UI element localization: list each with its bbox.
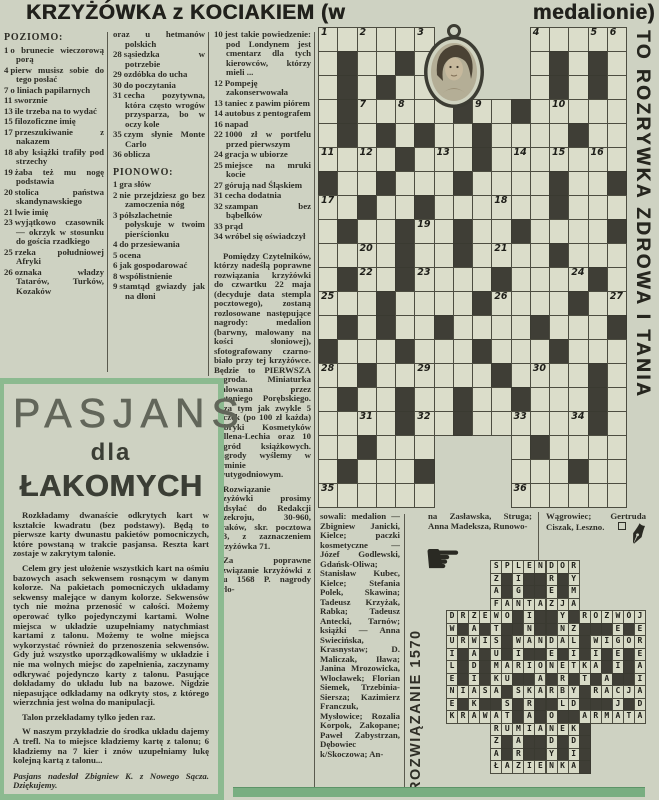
black-cell — [472, 123, 492, 148]
cell-number: 6 — [608, 27, 617, 38]
white-cell — [318, 123, 338, 148]
cell-number: 5 — [589, 27, 598, 38]
white-cell — [337, 363, 357, 388]
white-cell — [607, 75, 627, 100]
cell-number: 18 — [492, 195, 507, 206]
white-cell — [588, 315, 608, 340]
white-cell — [318, 75, 338, 100]
white-cell — [491, 339, 511, 364]
white-cell — [453, 339, 473, 364]
white-cell — [568, 27, 588, 52]
white-cell — [607, 363, 627, 388]
black-cell — [453, 171, 473, 196]
black-cell — [607, 219, 627, 244]
black-cell — [511, 219, 531, 244]
black-cell — [472, 147, 492, 172]
column-rule — [107, 32, 108, 372]
cell-number: 26 — [492, 291, 507, 302]
paragraph: Rozkładamy dwanaście odkrytych kart w ks… — [13, 511, 209, 559]
white-cell — [568, 315, 588, 340]
white-cell — [395, 363, 415, 388]
white-cell — [434, 219, 454, 244]
white-cell — [318, 99, 338, 124]
white-cell — [357, 339, 377, 364]
black-cell — [511, 387, 531, 412]
black-cell — [357, 195, 377, 220]
black-cell — [491, 363, 511, 388]
white-cell — [434, 291, 454, 316]
white-cell — [337, 339, 357, 364]
solution-letter-cell: D — [634, 698, 646, 712]
white-cell — [530, 459, 550, 484]
white-cell — [607, 339, 627, 364]
white-cell — [318, 315, 338, 340]
black-cell — [453, 243, 473, 268]
clue-list-across-cont: oraz u hetmanów polskich28sąsiedzka w po… — [113, 30, 205, 160]
black-cell — [337, 75, 357, 100]
clue-list-down: 1gra słów2nie przejdziesz go bez zamocze… — [113, 180, 205, 301]
clue-item: 4pierw musisz sobie do tego posłać — [4, 66, 104, 85]
black-cell — [357, 363, 377, 388]
solution-label: ROZWIĄZANIE 1570 — [408, 598, 424, 792]
white-cell — [434, 387, 454, 412]
clue-item: 23wyjątkowo czasownik — okrzyk w stosunk… — [4, 218, 104, 247]
black-cell — [337, 459, 357, 484]
clue-item: 3półszlachetnie połyskuje w twoim pierśc… — [113, 211, 205, 240]
side-slogan: TO ROZRYWKA ZDROWA I TANIA — [631, 30, 653, 512]
white-cell — [491, 123, 511, 148]
white-cell — [414, 339, 434, 364]
white-cell — [472, 267, 492, 292]
solution-letter-cell: M — [568, 585, 580, 599]
white-cell — [414, 483, 434, 508]
clue-item: 5ocena — [113, 251, 205, 261]
black-cell — [376, 315, 396, 340]
white-cell — [395, 435, 415, 460]
solution-letter-cell: E — [634, 623, 646, 637]
white-cell — [472, 243, 492, 268]
white-cell — [491, 171, 511, 196]
clue-item: 11sworznie — [4, 96, 104, 106]
white-cell — [472, 387, 492, 412]
solution-black-cell — [579, 748, 591, 762]
white-cell — [549, 291, 569, 316]
black-cell — [434, 315, 454, 340]
cell-number: 10 — [550, 99, 565, 110]
white-cell — [530, 387, 550, 412]
white-cell — [568, 483, 588, 508]
white-cell — [511, 459, 531, 484]
black-cell — [453, 387, 473, 412]
clue-item: 35czym słynie Monte Carlo — [113, 130, 205, 149]
white-cell — [511, 195, 531, 220]
white-cell — [568, 243, 588, 268]
white-cell — [568, 363, 588, 388]
white-cell — [434, 411, 454, 436]
clue-item: 25rzeka południowej Afryki — [4, 248, 104, 267]
clue-item: 27górują nad Śląskiem — [214, 181, 311, 191]
black-cell — [549, 243, 569, 268]
white-cell — [588, 171, 608, 196]
white-cell — [549, 435, 569, 460]
black-cell — [568, 459, 588, 484]
across-label: POZIOMO: — [4, 33, 104, 43]
white-cell — [453, 267, 473, 292]
white-cell — [395, 195, 415, 220]
white-cell — [434, 267, 454, 292]
clue-list-down-cont: 10jest takie powiedzenie: pod Londynem j… — [214, 30, 311, 242]
cell-number: 4 — [531, 27, 540, 38]
white-cell — [491, 411, 511, 436]
clue-item: 25miejsce na mruki kocie — [214, 161, 311, 180]
clue-item: 26oznaka władzy Tatarów, Turków, Kozaków — [4, 268, 104, 297]
white-cell — [453, 363, 473, 388]
cell-number: 34 — [569, 411, 584, 422]
white-cell — [549, 459, 569, 484]
clue-item: 28sąsiedzka w potrzebie — [113, 50, 205, 69]
black-cell — [337, 123, 357, 148]
clue-item: 221000 zł w portfelu przed pierwszym — [214, 130, 311, 149]
white-cell — [530, 99, 550, 124]
black-cell — [395, 147, 415, 172]
cell-number: 12 — [358, 147, 373, 158]
white-cell — [434, 171, 454, 196]
clue-item: 9stamtąd gwiazdy jak na dłoni — [113, 282, 205, 301]
black-cell — [607, 171, 627, 196]
cell-number: 25 — [319, 291, 334, 302]
white-cell — [588, 195, 608, 220]
black-cell — [491, 267, 511, 292]
white-cell — [376, 435, 396, 460]
white-cell — [530, 171, 550, 196]
white-cell — [472, 411, 492, 436]
white-cell — [357, 459, 377, 484]
white-cell — [568, 435, 588, 460]
cell-number: 1 — [319, 27, 328, 38]
column-rule — [314, 32, 315, 788]
column-rule — [538, 512, 539, 564]
black-cell — [530, 435, 550, 460]
white-cell — [318, 411, 338, 436]
white-cell — [549, 267, 569, 292]
clue-item: 2nie przejdziesz go bez zamoczenia nóg — [113, 191, 205, 210]
white-cell — [530, 147, 550, 172]
clue-item: 1o brunecie wieczorową porą — [4, 46, 104, 65]
white-cell — [530, 267, 550, 292]
black-cell — [414, 459, 434, 484]
cell-number: 20 — [358, 243, 373, 254]
pasjans-body-text: Rozkładamy dwanaście odkrytych kart w ks… — [13, 511, 209, 766]
solution-black-cell — [579, 723, 591, 737]
black-cell — [337, 387, 357, 412]
clue-item: 12Pompeję zakonserwowała — [214, 79, 311, 98]
solution-letter-cell: A — [634, 710, 646, 724]
clues-middle-column: oraz u hetmanów polskich28sąsiedzka w po… — [113, 30, 205, 376]
cell-number: 7 — [358, 99, 367, 110]
clue-item: 8współistnienie — [113, 272, 205, 282]
solution-black-cell — [579, 735, 591, 749]
black-cell — [376, 123, 396, 148]
white-cell — [472, 315, 492, 340]
black-cell — [549, 171, 569, 196]
white-cell — [530, 75, 550, 100]
black-cell — [318, 339, 338, 364]
page-title: KRZYŻÓWKA z KOCIAKIEM (w medalionie) — [0, 0, 659, 25]
white-cell — [607, 459, 627, 484]
clue-item: oraz u hetmanów polskich — [113, 30, 205, 49]
white-cell — [414, 387, 434, 412]
cell-number: 31 — [358, 411, 373, 422]
clue-item: 10jest takie powiedzenie: pod Londynem j… — [214, 30, 311, 78]
cell-number: 28 — [319, 363, 334, 374]
white-cell — [491, 219, 511, 244]
white-cell — [530, 291, 550, 316]
white-cell — [357, 291, 377, 316]
black-cell — [568, 123, 588, 148]
white-cell — [395, 75, 415, 100]
clue-list-across: 1o brunecie wieczorową porą4pierw musisz… — [4, 46, 104, 297]
black-cell — [472, 339, 492, 364]
white-cell — [395, 27, 415, 52]
white-cell — [414, 147, 434, 172]
white-cell — [376, 339, 396, 364]
white-cell — [376, 411, 396, 436]
white-cell — [607, 267, 627, 292]
white-cell — [376, 51, 396, 76]
paragraph: Pomiędzy Czytelników, którzy nadeślą pop… — [214, 252, 311, 480]
white-cell — [318, 267, 338, 292]
white-cell — [318, 51, 338, 76]
clue-item: 32szampan bez bąbelków — [214, 202, 311, 221]
white-cell — [395, 483, 415, 508]
clue-item: 1gra słów — [113, 180, 205, 190]
black-cell — [453, 411, 473, 436]
white-cell — [434, 195, 454, 220]
black-cell — [337, 267, 357, 292]
medallion-portrait-icon — [421, 23, 487, 116]
white-cell — [434, 339, 454, 364]
white-cell — [453, 315, 473, 340]
white-cell — [530, 411, 550, 436]
white-cell — [337, 171, 357, 196]
white-cell — [549, 123, 569, 148]
white-cell — [549, 411, 569, 436]
white-cell — [511, 123, 531, 148]
solution-letter-cell: E — [634, 648, 646, 662]
paragraph: Rozwiązanie krzyżówki prosimy nadsyłać d… — [214, 485, 311, 552]
white-cell — [530, 219, 550, 244]
white-cell — [530, 123, 550, 148]
cell-number: 36 — [512, 483, 527, 494]
white-cell — [337, 147, 357, 172]
white-cell — [511, 339, 531, 364]
white-cell — [511, 243, 531, 268]
white-cell — [491, 99, 511, 124]
white-cell — [337, 483, 357, 508]
white-cell — [376, 195, 396, 220]
paragraph: Talon przekładamy tylko jeden raz. — [13, 713, 209, 723]
cell-number: 32 — [415, 411, 430, 422]
white-cell — [568, 387, 588, 412]
white-cell — [357, 51, 377, 76]
white-cell — [588, 339, 608, 364]
solution-letter-cell: A — [568, 598, 580, 612]
black-cell — [549, 195, 569, 220]
cell-number: 19 — [415, 219, 430, 230]
clue-item: 15filozoficzne imię — [4, 117, 104, 127]
white-cell — [588, 219, 608, 244]
white-cell — [395, 459, 415, 484]
white-cell — [607, 195, 627, 220]
winners-column-1: sowali: medalion — Zbigniew Janicki, Kie… — [320, 512, 400, 788]
white-cell — [337, 411, 357, 436]
white-cell — [472, 363, 492, 388]
clue-item: 24gracja w ubiorze — [214, 150, 311, 160]
white-cell — [395, 171, 415, 196]
white-cell — [357, 315, 377, 340]
column-rule — [404, 514, 405, 788]
clue-item: 7o liniach papilarnych — [4, 86, 104, 96]
white-cell — [453, 123, 473, 148]
white-cell — [318, 459, 338, 484]
clue-item: 14autobus z pentografem — [214, 109, 311, 119]
black-cell — [414, 123, 434, 148]
cell-number: 24 — [569, 267, 584, 278]
white-cell — [337, 291, 357, 316]
clue-item: 31cecha pozytywna, która często wrogów p… — [113, 91, 205, 129]
black-cell — [395, 411, 415, 436]
white-cell — [607, 243, 627, 268]
green-divider-band — [233, 787, 645, 797]
white-cell — [607, 123, 627, 148]
white-cell — [357, 483, 377, 508]
clue-item: 21lwie imię — [4, 208, 104, 218]
white-cell — [568, 147, 588, 172]
white-cell — [357, 171, 377, 196]
black-cell — [588, 75, 608, 100]
white-cell — [511, 315, 531, 340]
white-cell — [414, 243, 434, 268]
cell-number: 33 — [512, 411, 527, 422]
cell-number: 22 — [358, 267, 373, 278]
solution-letter-cell: J — [634, 610, 646, 624]
white-cell — [318, 219, 338, 244]
solution-black-cell — [579, 760, 591, 774]
cell-number: 13 — [435, 147, 450, 158]
white-cell — [568, 171, 588, 196]
clue-item: 31cecha dodatnia — [214, 191, 311, 201]
black-cell — [318, 171, 338, 196]
white-cell — [434, 243, 454, 268]
white-cell — [376, 387, 396, 412]
white-cell — [511, 291, 531, 316]
black-cell — [357, 435, 377, 460]
cell-number: 30 — [531, 363, 546, 374]
clue-item: 17przeszukiwanie z nakazem — [4, 128, 104, 147]
white-cell — [337, 435, 357, 460]
black-cell — [376, 75, 396, 100]
cell-number: 27 — [608, 291, 623, 302]
white-cell — [549, 363, 569, 388]
solution-grid: SPLENDORZIRYAGEMFANTAZJADRZEWOIYROZWÓJWA… — [446, 560, 645, 773]
solution-letter-cell: R — [568, 560, 580, 574]
clue-item: 6jak gospodarować — [113, 261, 205, 271]
solution-letter-cell: A — [634, 660, 646, 674]
pasjans-credit: Pasjans nadesłał Zbigniew K. z Nowego Są… — [13, 772, 209, 791]
white-cell — [549, 219, 569, 244]
white-cell — [414, 291, 434, 316]
black-cell — [376, 171, 396, 196]
white-cell — [568, 339, 588, 364]
white-cell — [530, 51, 550, 76]
white-cell — [491, 315, 511, 340]
white-cell — [511, 171, 531, 196]
white-cell — [530, 483, 550, 508]
white-cell — [607, 435, 627, 460]
cell-number: 17 — [319, 195, 334, 206]
paragraph: Celem gry jest ułożenie wszystkich kart … — [13, 564, 209, 708]
clue-item: 36oblicza — [113, 150, 205, 160]
white-cell — [318, 435, 338, 460]
white-cell — [376, 243, 396, 268]
black-cell — [549, 75, 569, 100]
pasjans-article: PASJANS dla ŁAKOMYCH Rozkładamy dwanaści… — [0, 378, 224, 800]
cell-number: 16 — [589, 147, 604, 158]
cell-number: 35 — [319, 483, 334, 494]
cell-number: 11 — [319, 147, 334, 158]
white-cell — [568, 99, 588, 124]
pasjans-subtitle-big: ŁAKOMYCH — [13, 468, 209, 504]
page-title-left: KRZYŻÓWKA z KOCIAKIEM (w — [26, 1, 345, 25]
paragraph: Za poprawne rozwiązanie krzyżówki z nru … — [214, 556, 311, 594]
black-cell — [414, 195, 434, 220]
black-cell — [453, 219, 473, 244]
clue-item: 29ozdóbka do ucha — [113, 70, 205, 80]
black-cell — [337, 219, 357, 244]
black-cell — [395, 339, 415, 364]
white-cell — [357, 219, 377, 244]
white-cell — [588, 123, 608, 148]
white-cell — [395, 123, 415, 148]
clue-item: 16napad — [214, 120, 311, 130]
black-cell — [395, 387, 415, 412]
black-cell — [337, 99, 357, 124]
white-cell — [607, 99, 627, 124]
white-cell — [414, 315, 434, 340]
clue-item: 20stolica państwa skandynawskiego — [4, 188, 104, 207]
black-cell — [395, 51, 415, 76]
white-cell — [434, 363, 454, 388]
white-cell — [568, 75, 588, 100]
white-cell — [337, 27, 357, 52]
solution-letter-cell: I — [634, 673, 646, 687]
white-cell — [376, 27, 396, 52]
white-cell — [453, 195, 473, 220]
white-cell — [318, 243, 338, 268]
black-cell — [607, 315, 627, 340]
cell-number: 2 — [358, 27, 367, 38]
black-cell — [337, 315, 357, 340]
white-cell — [376, 99, 396, 124]
solution-letter-cell: R — [634, 635, 646, 649]
white-cell — [549, 315, 569, 340]
black-cell — [511, 99, 531, 124]
white-cell — [568, 219, 588, 244]
white-cell — [607, 483, 627, 508]
white-cell — [376, 267, 396, 292]
black-cell — [472, 291, 492, 316]
clue-item: 30do poczytania — [113, 81, 205, 91]
